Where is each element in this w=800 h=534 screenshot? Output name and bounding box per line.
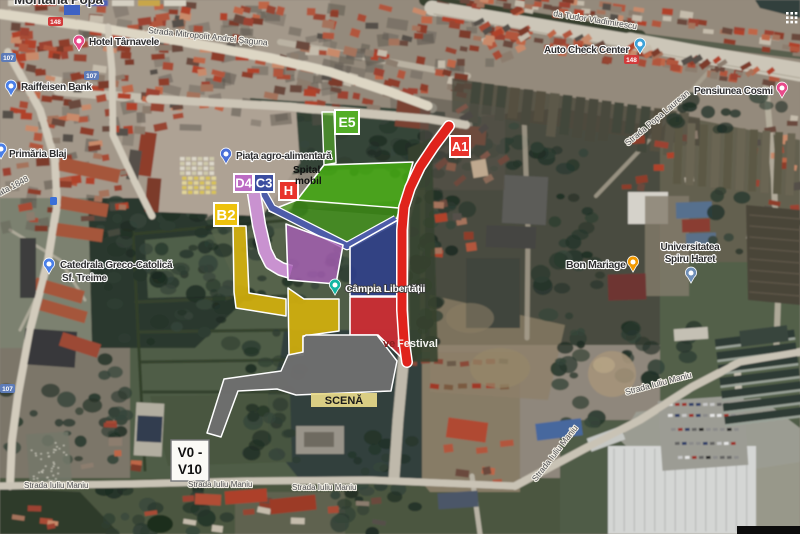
svg-text:V10: V10 xyxy=(178,462,202,477)
svg-text:Primăria Blaj: Primăria Blaj xyxy=(9,149,67,160)
svg-text:D4: D4 xyxy=(235,176,252,191)
svg-text:107: 107 xyxy=(3,55,14,62)
svg-text:Universitatea: Universitatea xyxy=(661,242,721,253)
svg-text:107: 107 xyxy=(2,386,13,393)
svg-text:Hotel Târnavele: Hotel Târnavele xyxy=(89,37,160,48)
svg-text:Spital: Spital xyxy=(293,165,320,176)
svg-text:ve: ve xyxy=(383,338,395,350)
svg-text:Spiru Haret: Spiru Haret xyxy=(665,254,717,265)
svg-text:148: 148 xyxy=(50,19,61,26)
svg-text:A1: A1 xyxy=(452,139,469,154)
svg-text:E5: E5 xyxy=(338,114,355,130)
svg-text:C3: C3 xyxy=(256,176,273,191)
svg-text:V0 -: V0 - xyxy=(178,445,203,460)
svg-text:Bon Mariage: Bon Mariage xyxy=(566,259,626,271)
svg-text:mobil: mobil xyxy=(295,176,322,187)
svg-text:Strada Iuliu Maniu: Strada Iuliu Maniu xyxy=(292,483,356,492)
svg-text:148: 148 xyxy=(626,57,637,64)
svg-text:H: H xyxy=(284,183,293,198)
svg-text:Strada Iuliu Maniu: Strada Iuliu Maniu xyxy=(24,481,88,490)
svg-text:Sf. Treime: Sf. Treime xyxy=(62,273,108,284)
svg-text:SCENĂ: SCENĂ xyxy=(325,394,364,407)
svg-text:Strada Iuliu Maniu: Strada Iuliu Maniu xyxy=(188,480,252,489)
svg-text:Catedrala Greco-Catolică: Catedrala Greco-Catolică xyxy=(60,260,173,271)
svg-text:Câmpia Libertății: Câmpia Libertății xyxy=(345,283,425,295)
svg-text:Montana Popa: Montana Popa xyxy=(14,0,103,7)
svg-text:Piața agro-alimentară: Piața agro-alimentară xyxy=(236,151,332,162)
svg-text:Auto Check Center: Auto Check Center xyxy=(544,45,629,56)
svg-text:B2: B2 xyxy=(216,207,235,224)
svg-text:107: 107 xyxy=(86,73,97,80)
svg-text:Festival: Festival xyxy=(397,338,438,350)
svg-text:Pensiunea Cosmi: Pensiunea Cosmi xyxy=(694,86,773,97)
svg-text:Raiffeisen Bank: Raiffeisen Bank xyxy=(21,82,92,93)
